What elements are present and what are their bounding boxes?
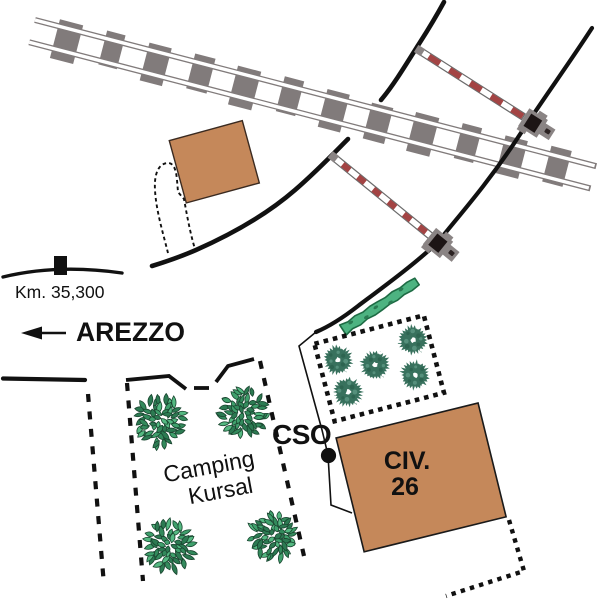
svg-text:Km. 35,300: Km. 35,300 <box>15 282 105 302</box>
svg-text:26: 26 <box>391 473 419 501</box>
svg-text:AREZZO: AREZZO <box>76 317 185 347</box>
svg-text:CIV.: CIV. <box>384 447 430 475</box>
svg-text:CSO: CSO <box>272 419 331 450</box>
